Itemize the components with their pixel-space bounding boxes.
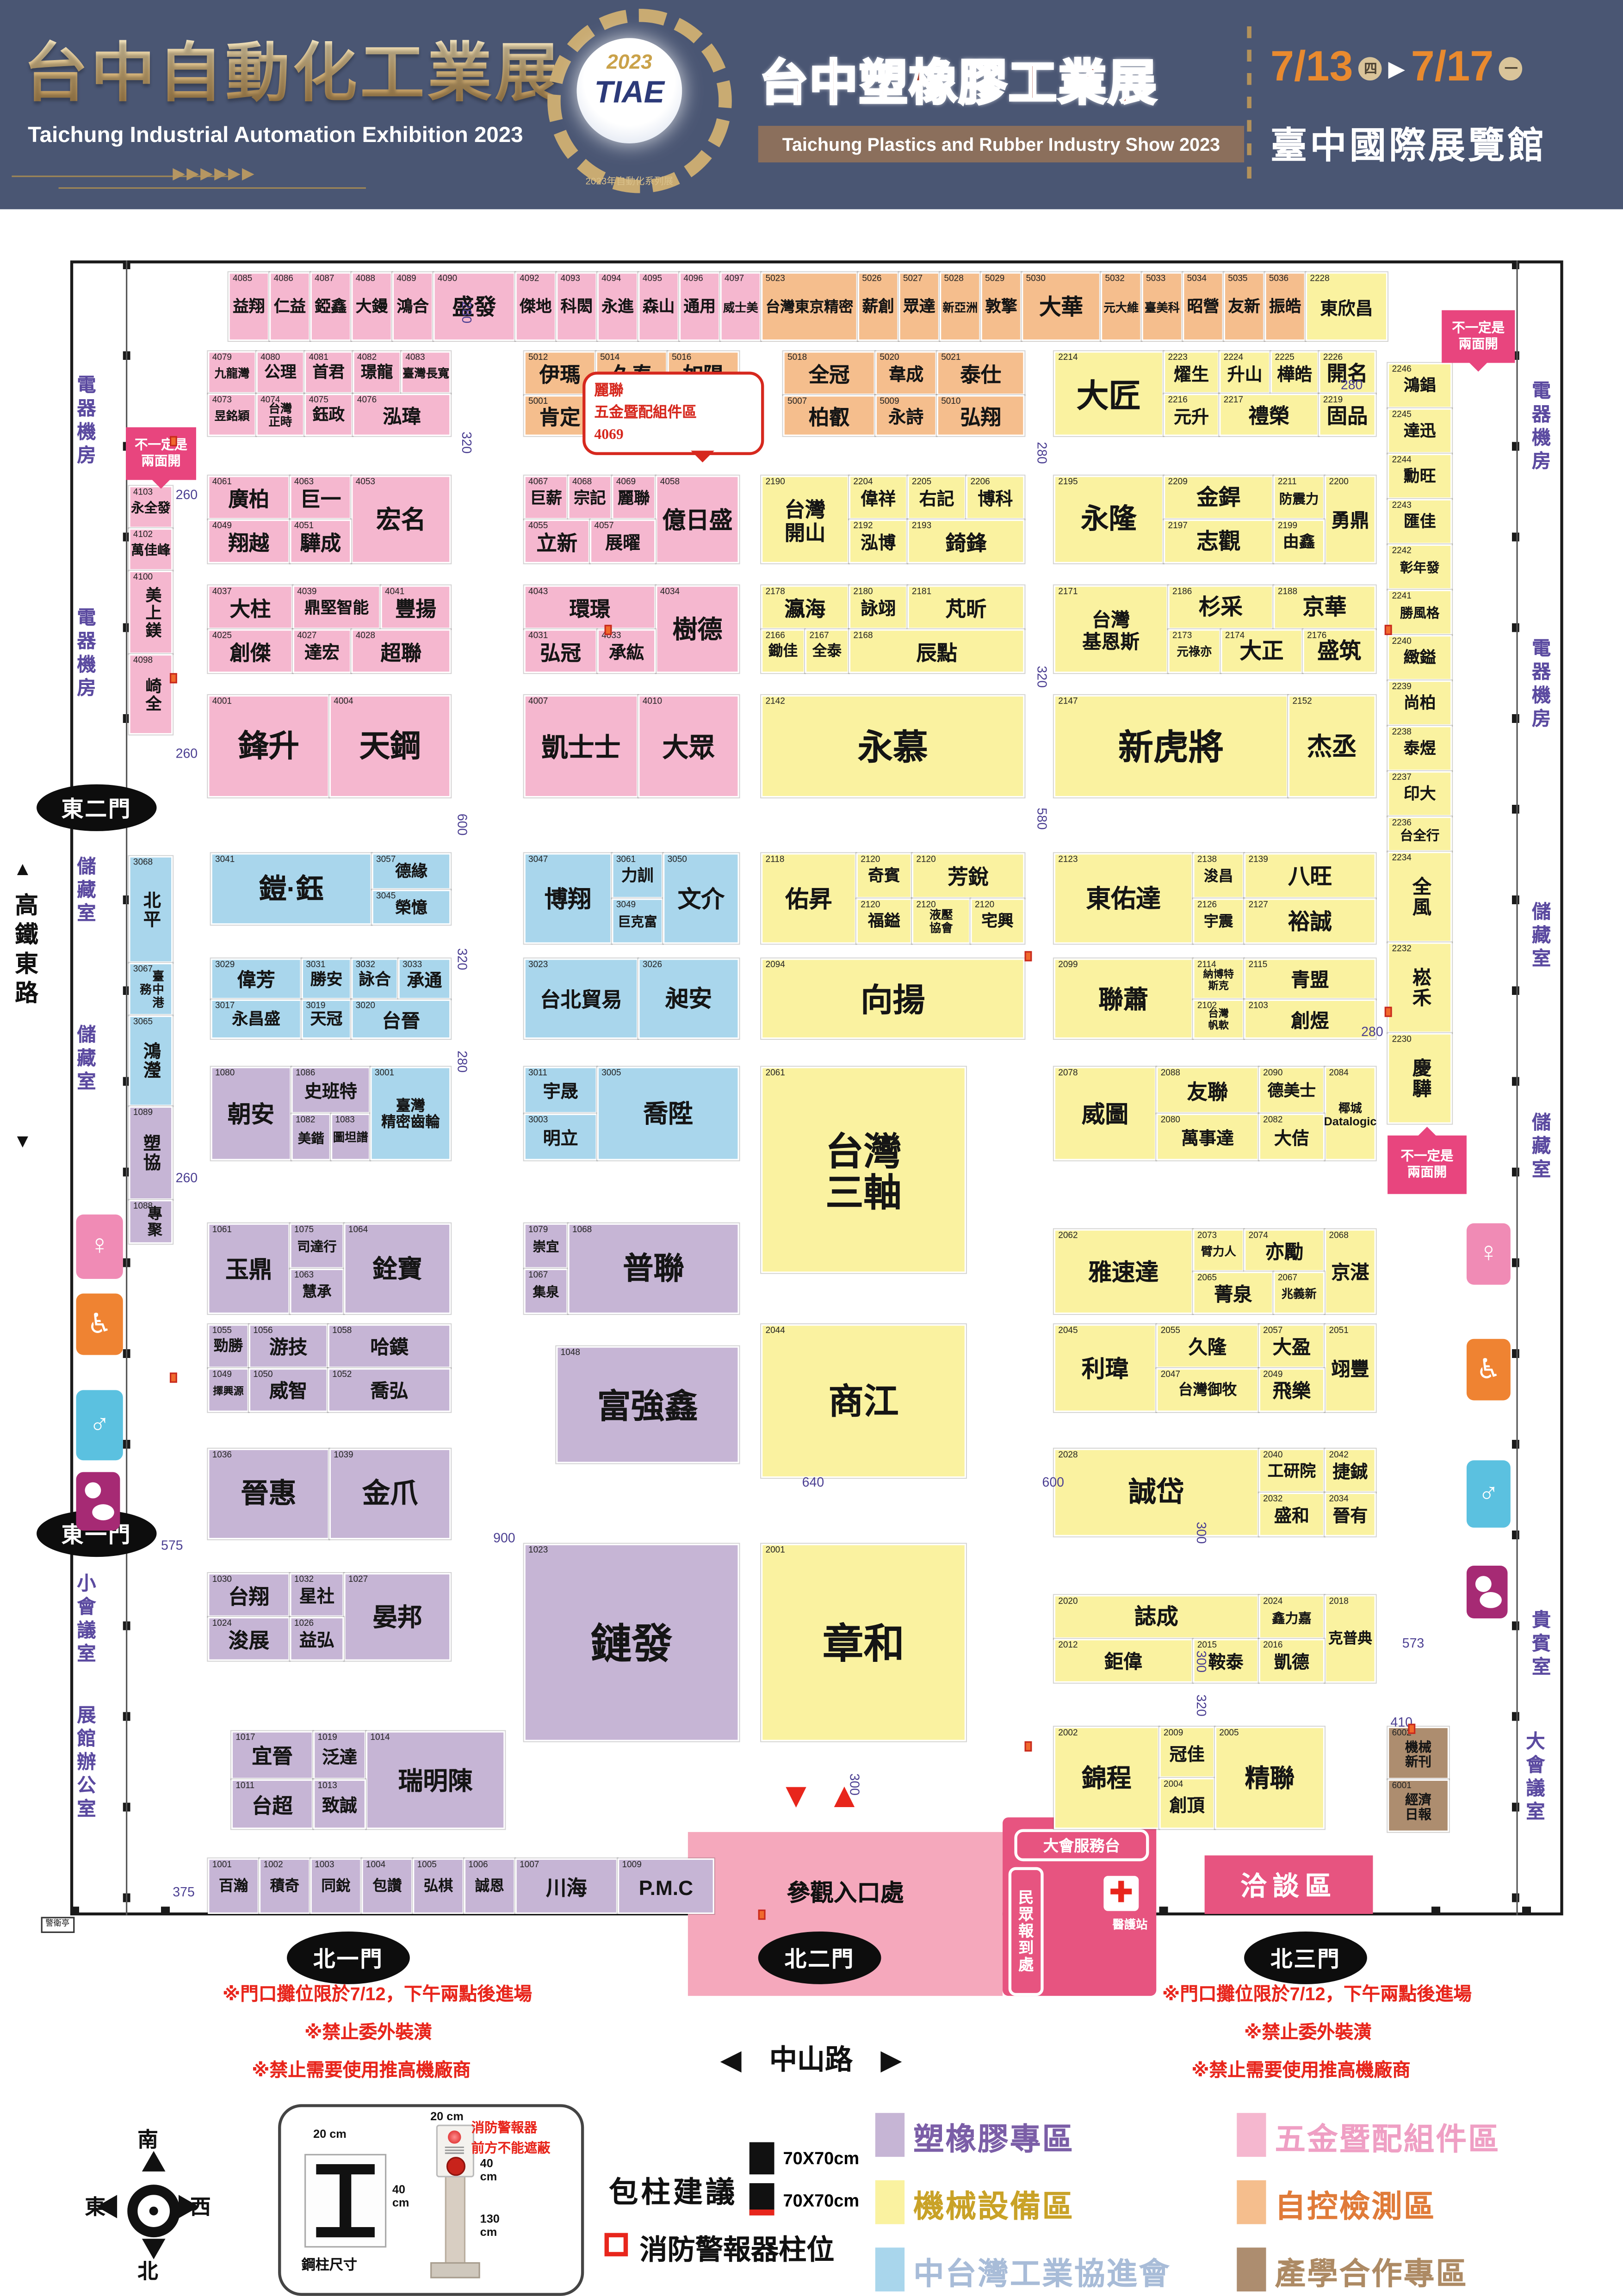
booth-number: 1052 — [332, 1370, 352, 1379]
booth-number: 2239 — [1392, 683, 1412, 691]
booth-name: 崎全 — [142, 677, 160, 712]
booth-2024: 2024鑫力嘉 — [1259, 1595, 1325, 1639]
booth-number: 2045 — [1058, 1327, 1078, 1335]
booth-number: 2024 — [1263, 1597, 1282, 1606]
booth-2209: 2209金銲 — [1164, 475, 1273, 519]
booth-1052: 1052喬弘 — [328, 1368, 451, 1412]
booth-4075: 4075鈺政 — [304, 394, 353, 436]
booth-name: 台灣御牧 — [1178, 1380, 1237, 1401]
booth-number: 3067 — [133, 965, 153, 974]
map-label-43: 300 — [846, 1773, 862, 1796]
booth-name: 亦勵 — [1265, 1238, 1303, 1263]
booth-name: 凱士士 — [542, 730, 621, 763]
booth-name: 敦擎 — [985, 296, 1017, 317]
booth-1005: 1005弘棋 — [413, 1858, 464, 1914]
booth-2073: 2073臂力人 — [1193, 1229, 1244, 1271]
booth-number: 1024 — [212, 1619, 232, 1628]
booth-4092: 4092傑地 — [515, 272, 557, 341]
booth-name: 浚昌 — [1204, 866, 1233, 886]
booth-number: 2237 — [1392, 773, 1412, 782]
booth-name: 積奇 — [270, 1876, 299, 1896]
booth-number: 5027 — [903, 274, 923, 283]
booth-number: 5007 — [787, 397, 807, 406]
booth-4027: 4027達宏 — [293, 629, 352, 673]
booth-number: 2186 — [1172, 587, 1192, 596]
booth-number: 3047 — [528, 855, 548, 864]
booth-2200: 2200勇鼎 — [1325, 475, 1376, 563]
booth-2180: 2180詠翊 — [849, 585, 908, 629]
booth-name: 百瀚 — [219, 1876, 248, 1896]
booth-number: 4076 — [357, 396, 377, 405]
booth-number: 4025 — [212, 631, 232, 640]
booth-number: 2074 — [1249, 1231, 1268, 1240]
booth-number: 5028 — [944, 274, 964, 283]
booth-2224: 2224升山 — [1219, 351, 1270, 394]
access-restroom-icon: ♿ — [1467, 1339, 1511, 1401]
booth-4001: 4001鋒升 — [208, 695, 329, 797]
booth-5032: 5032元大維 — [1101, 272, 1142, 341]
checkin-label: 民眾報到處 — [1009, 1867, 1044, 1996]
booth-3026: 3026昶安 — [638, 958, 739, 1039]
booth-name: 泰煜 — [1404, 738, 1436, 759]
booth-number: 4007 — [528, 697, 548, 706]
booth-name: 璟龍 — [361, 362, 393, 383]
booth-2219: 2219固品 — [1319, 394, 1375, 436]
booth-2061: 2061台灣 三軸 — [761, 1067, 966, 1273]
booth-2062: 2062雅速達 — [1054, 1229, 1193, 1314]
booth-name: 飛樂 — [1273, 1377, 1311, 1402]
map-label-42: 320 — [1193, 1694, 1208, 1716]
booth-number: 2234 — [1392, 854, 1412, 863]
booth-name: 鈺政 — [312, 404, 345, 426]
map-label-38: 640 — [802, 1475, 824, 1491]
booth-3029: 3029偉芳 — [211, 958, 302, 1000]
booth-4055: 4055立新 — [524, 519, 590, 563]
booth-2084: 2084椰城 Datalogic — [1325, 1067, 1376, 1160]
booth-1024: 1024浚展 — [208, 1617, 290, 1661]
note-l1: ※門口攤位限於7/12，下午兩點後進場 — [223, 1984, 532, 2006]
booth-number: 4001 — [212, 697, 232, 706]
booth-4094: 4094永進 — [597, 272, 638, 341]
booth-name: 驊成 — [300, 528, 341, 555]
booth-number: 2080 — [1161, 1116, 1180, 1124]
booth-name: 晉有 — [1332, 1503, 1368, 1526]
booth-number: 4043 — [528, 587, 548, 596]
booth-2238: 2238泰煜 — [1388, 726, 1452, 771]
booth-4069: 4069麗聯 — [612, 475, 656, 519]
booth-2068: 2068京湛 — [1325, 1229, 1376, 1314]
booth-number: 4081 — [309, 353, 328, 362]
map-label-27: 260 — [176, 746, 198, 762]
booth-name: 瑞明陳 — [398, 1765, 472, 1796]
booth-number: 2241 — [1392, 592, 1412, 601]
booth-number: 5009 — [880, 397, 899, 406]
booth-number: 2204 — [853, 478, 873, 487]
booth-number: 1083 — [335, 1116, 354, 1124]
room-elec-l2: 電器機房 — [73, 607, 96, 701]
booth-name: 翊豐 — [1331, 1356, 1369, 1381]
booth-number: 3020 — [356, 1001, 375, 1010]
booth-number: 4057 — [594, 522, 613, 531]
booth-number: 4073 — [212, 396, 232, 405]
fire-alarm-marker — [758, 1909, 766, 1920]
booth-2139: 2139八旺 — [1244, 853, 1376, 898]
booth-number: 2047 — [1161, 1370, 1180, 1379]
booth-name: 納博特 斯克 — [1203, 966, 1233, 992]
booth-number: 4051 — [294, 522, 314, 531]
booth-number: 2002 — [1058, 1729, 1078, 1738]
booth-number: 2118 — [766, 855, 785, 864]
booth-name: 仁益 — [274, 296, 306, 317]
booth-name: 包讚 — [372, 1876, 402, 1896]
map-label-30: 280 — [454, 1050, 470, 1073]
booth-number: 4098 — [133, 656, 153, 665]
booth-name: 新虎將 — [1118, 725, 1224, 767]
booth-name: 杉采 — [1199, 593, 1243, 622]
booth-2065: 2065菁泉 — [1193, 1271, 1273, 1314]
booth-number: 2240 — [1392, 637, 1412, 646]
booth-2243: 2243匯佳 — [1388, 499, 1452, 544]
booth-4085: 4085益翔 — [229, 272, 270, 341]
booth-name: 辰點 — [916, 638, 957, 664]
booth-2239: 2239尚柏 — [1388, 680, 1452, 726]
booth-name: 東欣昌 — [1320, 295, 1373, 318]
booth-2223: 2223燿生 — [1164, 351, 1219, 394]
booth-number: 1064 — [348, 1226, 368, 1234]
booth-number: 2061 — [766, 1069, 785, 1078]
booth-number: 1082 — [296, 1116, 315, 1124]
booth-name: 大正 — [1240, 637, 1284, 665]
booth-number: 5016 — [672, 353, 691, 362]
booth-name: 鋤佳 — [768, 641, 798, 661]
booth-name: 機械 新刊 — [1405, 1737, 1431, 1770]
booth-number: 2082 — [1263, 1116, 1282, 1124]
booth-number: 2067 — [1278, 1274, 1297, 1283]
gate-north-1: 北一門 — [287, 1932, 410, 1984]
booth-name: 臂力人 — [1201, 1242, 1236, 1259]
booth-4028: 4028超聯 — [351, 629, 451, 673]
booth-name: 益弘 — [299, 1627, 335, 1650]
booth-3045: 3045榮憶 — [372, 889, 451, 925]
booth-name: 大華 — [1039, 292, 1083, 321]
booth-2028: 2028誠岱 — [1054, 1449, 1259, 1537]
booth-4037: 4037大柱 — [208, 585, 292, 629]
booth-name: 聯蕭 — [1098, 983, 1148, 1014]
booth-number: 2192 — [853, 522, 873, 531]
booth-4061: 4061廣柏 — [208, 475, 290, 519]
booth-number: 1050 — [253, 1370, 273, 1379]
booth-number: 2223 — [1168, 353, 1188, 362]
fire-alarm-marker — [1385, 625, 1392, 635]
booth-2242: 2242彰年發 — [1388, 544, 1452, 590]
map-label-34: 580 — [1034, 808, 1049, 830]
booth-name: 全冠 — [809, 360, 850, 386]
booth-number: 4053 — [356, 478, 375, 487]
booth-name: 永詩 — [888, 404, 923, 427]
booth-2080: 2080萬事達 — [1156, 1113, 1258, 1160]
booth-name: 液壓 協會 — [929, 906, 953, 936]
booth-2244: 2244勳旺 — [1388, 454, 1452, 499]
booth-name: 振皓 — [1269, 296, 1301, 317]
booth-name: 全風 — [1409, 876, 1430, 918]
booth-number: 2055 — [1161, 1327, 1180, 1335]
room-store-r2: 儲藏室 — [1528, 1112, 1551, 1182]
booth-2127: 2127裕誠 — [1244, 898, 1376, 944]
booth-number: 4069 — [616, 478, 636, 487]
booth-name: 弘棋 — [424, 1876, 453, 1896]
map-label-37: 575 — [161, 1538, 183, 1554]
booth-number: 2246 — [1392, 365, 1412, 374]
booth-name: 韋成 — [888, 361, 923, 384]
booth-2236: 2236台全行 — [1388, 816, 1452, 852]
booth-number: 1061 — [212, 1226, 232, 1234]
booth-3033: 3033承通 — [398, 958, 451, 1000]
fire-alarm-marker — [1385, 1007, 1392, 1017]
booth-number: 3057 — [376, 855, 396, 864]
booth-4039: 4039鼎堅智能 — [293, 585, 381, 629]
booth-name: 詠合 — [359, 968, 391, 990]
booth-name: 九龍灣 — [214, 364, 249, 381]
booth-2192: 2192泓博 — [849, 519, 908, 563]
map-label-29: 320 — [454, 948, 470, 970]
booth-2049: 2049飛樂 — [1259, 1368, 1325, 1412]
booth-name: 勝安 — [310, 968, 343, 990]
booth-number: 4037 — [212, 587, 232, 596]
booth-1004: 1004包讚 — [361, 1858, 413, 1914]
road-left-arrow-down: ▼ — [13, 1129, 32, 1152]
booth-number: 3017 — [215, 1001, 235, 1010]
booth-name: 威智 — [269, 1377, 307, 1402]
booth-number: 4094 — [601, 274, 621, 283]
room-elec-r1: 電器機房 — [1528, 381, 1551, 474]
legend-label: 塑橡膠專區 — [913, 2116, 1074, 2160]
female-restroom-icon: ♀ — [76, 1215, 123, 1279]
booth-number: 5033 — [1146, 274, 1165, 283]
booth-number: 6001 — [1392, 1782, 1412, 1790]
booth-number: 4087 — [315, 274, 334, 283]
booth-number: 5026 — [862, 274, 881, 283]
booth-name: 永隆 — [1081, 502, 1136, 537]
booth-name: 集泉 — [533, 1282, 559, 1301]
booth-name: 首君 — [312, 362, 345, 383]
room-store-r1: 儲藏室 — [1528, 901, 1551, 972]
booth-name: 章和 — [823, 1618, 904, 1667]
booth-4034: 4034樹德 — [656, 585, 739, 673]
booth-3050: 3050文介 — [663, 853, 739, 944]
booth-name: 巨薪 — [530, 487, 562, 508]
booth-number: 5014 — [600, 353, 619, 362]
booth-name: 防震力 — [1279, 488, 1319, 507]
booth-number: 2244 — [1392, 456, 1412, 464]
booth-number: 2051 — [1329, 1327, 1349, 1335]
booth-name: 樹德 — [673, 614, 723, 645]
male-restroom-icon: ♂ — [76, 1390, 123, 1460]
booth-name: 東佑達 — [1086, 883, 1160, 914]
compass-center-dot — [149, 2207, 158, 2216]
booth-3047: 3047博翔 — [524, 853, 612, 944]
booth-name: 杰丞 — [1307, 731, 1357, 762]
booth-name: 椰城 Datalogic — [1324, 1099, 1376, 1128]
booth-4095: 4095森山 — [638, 272, 679, 341]
legend-swatch — [1237, 2247, 1266, 2291]
booth-4097: 4097威士美 — [720, 272, 761, 341]
booth-5021: 5021泰仕 — [937, 351, 1025, 395]
booth-number: 2078 — [1058, 1069, 1078, 1078]
booth-number: 2190 — [766, 478, 785, 487]
booth-name: 芳銳 — [948, 863, 989, 889]
booth-5026: 5026薪創 — [858, 272, 899, 341]
fire-alarm-head-icon — [436, 2125, 474, 2178]
map-label-41: 300 — [1193, 1651, 1208, 1673]
booth-name: 宇晟 — [543, 1079, 578, 1102]
booth-4057: 4057展曜 — [590, 519, 656, 563]
booth-number: 5030 — [1026, 274, 1046, 283]
booth-1001: 1001百瀚 — [208, 1858, 259, 1914]
booth-2114: 2114納博特 斯克 — [1193, 958, 1244, 1000]
booth-5033: 5033臺美科 — [1142, 272, 1183, 341]
booth-2005: 2005精聯 — [1215, 1727, 1325, 1829]
booth-name: 勳旺 — [1404, 465, 1436, 487]
booth-4089: 4089鴻合 — [392, 272, 434, 341]
booth-name: 力訓 — [621, 865, 654, 887]
booth-2001: 2001章和 — [761, 1544, 966, 1741]
booth-number: 2197 — [1168, 522, 1188, 531]
booth-2193: 2193錡鋒 — [907, 519, 1024, 563]
booth-name: 泰仕 — [960, 360, 1001, 386]
booth-name: 達迅 — [1404, 420, 1436, 442]
room-vip: 貴賓室 — [1528, 1610, 1551, 1680]
booth-name: 誠岱 — [1128, 1475, 1184, 1510]
dim-130cm: 130 cm — [480, 2212, 500, 2239]
booth-number: 1088 — [133, 1202, 153, 1211]
booth-number: 5001 — [528, 397, 548, 406]
booth-4058: 4058億日盛 — [656, 475, 739, 563]
booth-1003: 1003同銳 — [310, 1858, 362, 1914]
booth-name: 泓博 — [861, 530, 896, 553]
booth-name: 同銳 — [321, 1876, 350, 1896]
booth-number: 2193 — [912, 522, 931, 531]
booth-1006: 1006誠恩 — [464, 1858, 515, 1914]
booth-number: 2012 — [1058, 1641, 1078, 1650]
booth-number: 2217 — [1224, 396, 1243, 405]
booth-1064: 1064銓寶 — [344, 1223, 451, 1314]
booth-name: 威圖 — [1082, 1099, 1128, 1128]
fire-alarm-column-icon — [605, 2233, 628, 2257]
booth-number: 4102 — [133, 531, 153, 539]
booth-name: 通用 — [683, 296, 716, 317]
booth-2126: 2126宇震 — [1193, 898, 1244, 944]
wrap-size-1: 70X70cm — [783, 2148, 860, 2168]
booth-number: 3065 — [133, 1018, 153, 1026]
booth-2230: 2230慶驊 — [1388, 1033, 1452, 1124]
booth-name: 昭營 — [1187, 296, 1220, 317]
booth-name: 鴻錩 — [1404, 375, 1436, 396]
booth-name: 超聯 — [381, 638, 422, 664]
booth-number: 3049 — [616, 901, 636, 909]
booth-4090: 4090盛發 — [433, 272, 515, 341]
booth-2204: 2204偉祥 — [849, 475, 908, 519]
booth-1061: 1061玉鼎 — [208, 1223, 290, 1314]
booth-number: 1056 — [253, 1327, 273, 1335]
booth-1058: 1058哈鏌 — [328, 1324, 451, 1368]
booth-number: 2245 — [1392, 410, 1412, 419]
booth-name: 大柱 — [230, 594, 271, 620]
booth-number: 1032 — [294, 1575, 314, 1584]
road-bottom: ◀ 中山路 ▶ — [720, 2046, 902, 2079]
booth-number: 2236 — [1392, 819, 1412, 827]
booth-name: 全泰 — [812, 641, 842, 661]
booth-name: 佑昇 — [785, 883, 832, 913]
booth-2115: 2115青盟 — [1244, 958, 1376, 1000]
booth-1030: 1030台翔 — [208, 1573, 290, 1617]
booth-name: 慧承 — [302, 1281, 331, 1302]
booth-1083: 1083圖坦譜 — [331, 1113, 370, 1160]
booth-2004: 2004創頂 — [1159, 1778, 1215, 1829]
booth-2120: 2120液壓 協會 — [912, 898, 971, 944]
booth-1002: 1002積奇 — [259, 1858, 310, 1914]
booth-2206: 2206博科 — [966, 475, 1025, 519]
booth-number: 1026 — [294, 1619, 314, 1628]
booth-name: 天鋼 — [359, 728, 421, 765]
booth-number: 2168 — [853, 631, 873, 640]
booth-1019: 1019泛達 — [313, 1731, 366, 1779]
booth-number: 2102 — [1197, 1001, 1217, 1010]
booth-2197: 2197志觀 — [1164, 519, 1273, 563]
booth-number: 2178 — [766, 587, 785, 596]
booth-name: 宏名 — [376, 504, 426, 535]
booth-name: 公理 — [264, 362, 297, 383]
booth-4025: 4025創傑 — [208, 629, 292, 673]
booth-name: 鑫力嘉 — [1272, 1608, 1311, 1626]
legend-label: 中台灣工業協進會 — [913, 2251, 1171, 2295]
dim-20cm-right: 20 cm — [430, 2110, 464, 2123]
booth-number: 4092 — [520, 274, 539, 283]
map-label-33: 320 — [1034, 666, 1049, 688]
booth-number: 4096 — [683, 274, 703, 283]
booth-number: 5035 — [1228, 274, 1247, 283]
booth-name: 勇鼎 — [1331, 507, 1369, 532]
booth-name: 創煜 — [1291, 1007, 1329, 1032]
booth-2228: 2228東欣昌 — [1306, 272, 1388, 341]
compass-arrow-icon — [142, 2239, 166, 2259]
booth-number: 3029 — [215, 961, 235, 969]
corridor-wall-right — [1516, 260, 1518, 1915]
booth-number: 2120 — [916, 855, 935, 864]
booth-number: 2243 — [1392, 501, 1412, 510]
map-label-46: 375 — [173, 1885, 195, 1901]
booth-name: 薪創 — [862, 296, 894, 317]
booth-number: 5032 — [1105, 274, 1125, 283]
map-label-36: 900 — [493, 1531, 515, 1546]
booth-number: 4085 — [233, 274, 252, 283]
booth-name: 冠佳 — [1170, 1741, 1205, 1764]
booth-number: 2205 — [912, 478, 931, 487]
booth-number: 2115 — [1249, 961, 1268, 969]
booth-number: 2216 — [1168, 396, 1188, 405]
booth-2176: 2176盛筑 — [1303, 629, 1376, 673]
booth-1082: 1082美鍇 — [291, 1113, 331, 1160]
booth-number: 5010 — [941, 397, 960, 406]
booth-4053: 4053宏名 — [351, 475, 451, 563]
booth-1039: 1039金爪 — [329, 1449, 451, 1539]
booth-number: 4080 — [260, 353, 280, 362]
booth-2234: 2234全風 — [1388, 852, 1452, 942]
booth-name: 鞍泰 — [1208, 1649, 1244, 1672]
booth-1013: 1013致誠 — [313, 1779, 366, 1829]
booth-4068: 4068宗記 — [568, 475, 612, 519]
booth-1048: 1048富強鑫 — [556, 1346, 739, 1463]
booth-number: 3019 — [306, 1001, 325, 1010]
